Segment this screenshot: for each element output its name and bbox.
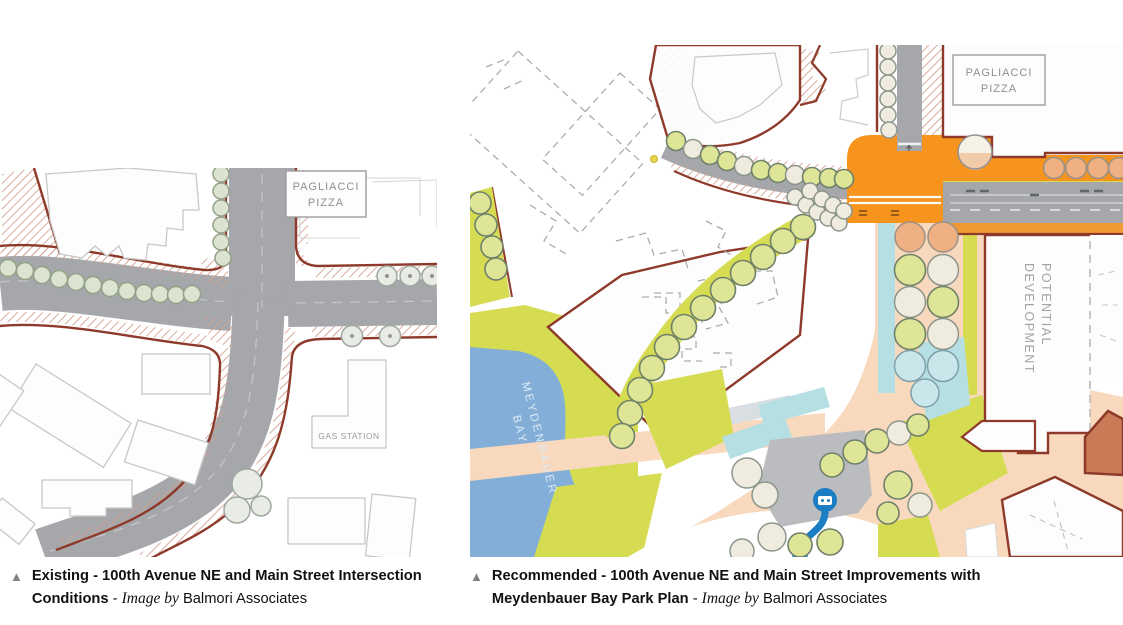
nw-building-outline	[830, 49, 868, 125]
gas-station-label: GAS STATION	[318, 431, 379, 441]
pagliacci-pizza-label: PAGLIACCI	[966, 67, 1033, 79]
svg-text:POTENTIAL: POTENTIAL	[1039, 263, 1053, 346]
caption-existing: ▲ Existing - 100th Avenue NE and Main St…	[10, 566, 440, 610]
document-page: PAGLIACCI PIZZA GAS STATION	[0, 0, 1123, 625]
pagliacci-pizza-label: PAGLIACCI	[293, 181, 360, 193]
pagliacci-pizza-sign-box	[953, 55, 1045, 105]
caption-recommended-text: Recommended - 100th Avenue NE and Main S…	[492, 566, 1057, 610]
pagliacci-pizza-label: PIZZA	[308, 197, 344, 209]
svg-text:DEVELOPMENT: DEVELOPMENT	[1022, 263, 1036, 374]
existing-plan-drawing: PAGLIACCI PIZZA GAS STATION	[0, 168, 437, 557]
triangle-marker-icon: ▲	[470, 566, 483, 587]
caption-recommended: ▲ Recommended - 100th Avenue NE and Main…	[470, 566, 1120, 610]
caption-existing-text: Existing - 100th Avenue NE and Main Stre…	[32, 566, 424, 610]
pagliacci-pizza-label: PIZZA	[981, 83, 1017, 95]
caption-credit-name: Balmori Associates	[763, 591, 887, 607]
caption-credit-name: Balmori Associates	[183, 591, 307, 607]
figure-recommended-plan: PAGLIACCI PIZZA POTENTIAL DEVELOPMENT ME…	[470, 45, 1123, 557]
caption-credit-prefix: Image by	[122, 590, 179, 607]
figure-existing-plan: PAGLIACCI PIZZA GAS STATION	[0, 168, 437, 557]
recommended-plan-drawing: PAGLIACCI PIZZA POTENTIAL DEVELOPMENT ME…	[470, 45, 1123, 557]
pagliacci-pizza-sign-box	[286, 171, 366, 217]
caption-separator: -	[689, 591, 702, 607]
caption-credit-prefix: Image by	[702, 590, 759, 607]
triangle-marker-icon: ▲	[10, 566, 23, 587]
white-margin	[1091, 235, 1123, 383]
marker-dot	[651, 156, 658, 163]
caption-separator: -	[109, 591, 122, 607]
